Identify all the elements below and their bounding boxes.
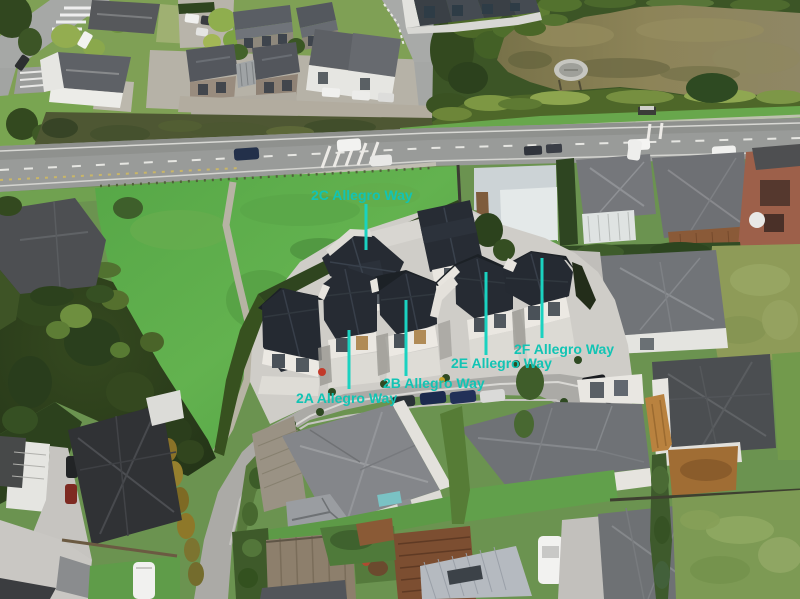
- svg-text:2F Allegro Way: 2F Allegro Way: [514, 341, 614, 357]
- svg-text:2B Allegro Way: 2B Allegro Way: [383, 375, 485, 391]
- svg-text:2C Allegro Way: 2C Allegro Way: [311, 187, 413, 203]
- svg-text:2E Allegro Way: 2E Allegro Way: [451, 355, 552, 371]
- svg-text:2A Allegro Way: 2A Allegro Way: [296, 390, 397, 406]
